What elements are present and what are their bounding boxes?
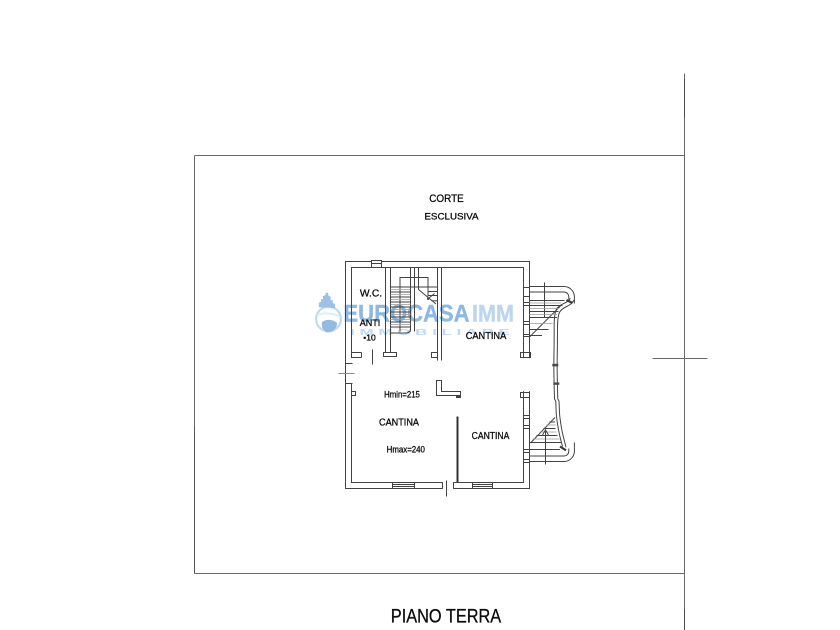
svg-text:IMM: IMM xyxy=(472,300,514,327)
svg-text:PIANO TERRA: PIANO TERRA xyxy=(391,606,502,627)
svg-text:•10: •10 xyxy=(363,333,376,343)
svg-text:ANTI: ANTI xyxy=(360,318,381,329)
svg-text:ESCLUSIVA: ESCLUSIVA xyxy=(424,212,479,223)
svg-text:W.C.: W.C. xyxy=(360,288,382,300)
svg-text:CORTE: CORTE xyxy=(429,193,464,205)
svg-text:CANTINA: CANTINA xyxy=(472,431,510,442)
svg-text:CANTINA: CANTINA xyxy=(466,331,507,342)
svg-text:Hmax=240: Hmax=240 xyxy=(387,445,425,455)
svg-text:Hmin=215: Hmin=215 xyxy=(384,390,420,400)
svg-text:CANTINA: CANTINA xyxy=(379,417,419,428)
